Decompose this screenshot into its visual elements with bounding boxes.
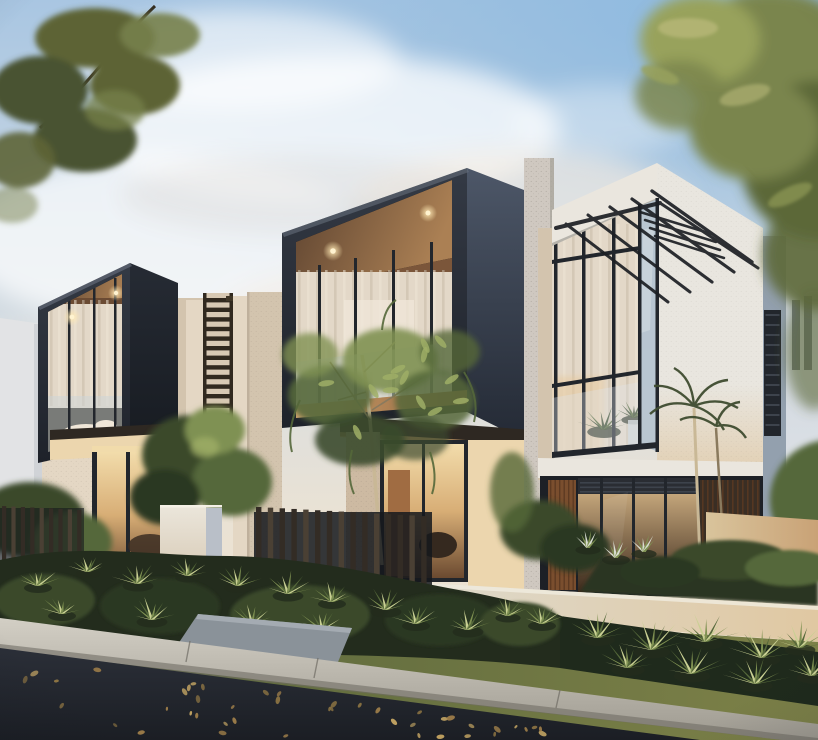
vignette [0, 0, 818, 740]
townhouse-dusk-render [0, 0, 818, 740]
render-canvas [0, 0, 818, 740]
